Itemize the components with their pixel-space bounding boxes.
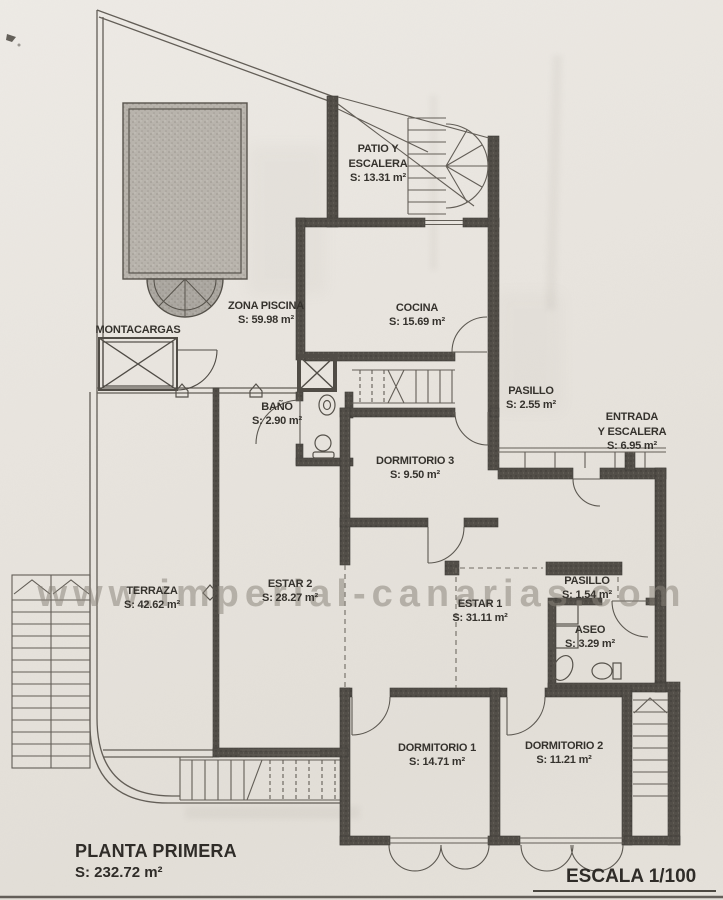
room-label-dormitorio1: DORMITORIO 1 S: 14.71 m² xyxy=(398,742,476,769)
room-label-patio-escalera: PATIO Y ESCALERA S: 13.31 m² xyxy=(349,142,408,186)
room-label-entrada-escalera: ENTRADA Y ESCALERA S: 6.95 m² xyxy=(598,410,667,454)
room-label-zona-piscina: ZONA PISCINA S: 59.98 m² xyxy=(228,300,304,327)
room-label-estar2: ESTAR 2 S: 28.27 m² xyxy=(262,578,318,605)
plan-title-block: PLANTA PRIMERA S: 232.72 m² xyxy=(75,841,237,882)
room-label-aseo: ASEO S: 3.29 m² xyxy=(565,624,615,651)
plan-total-area: S: 232.72 m² xyxy=(75,863,237,883)
scale-label: ESCALA 1/100 xyxy=(566,866,696,888)
room-label-pasillo-superior: PASILLO S: 2.55 m² xyxy=(506,385,556,412)
room-label-dormitorio2: DORMITORIO 2 S: 11.21 m² xyxy=(525,740,603,767)
room-label-estar1: ESTAR 1 S: 31.11 m² xyxy=(452,598,507,625)
room-label-bano: BAÑO S: 2.90 m² xyxy=(252,401,302,428)
room-label-montacargas: MONTACARGAS xyxy=(96,324,181,338)
room-label-cocina: COCINA S: 15.69 m² xyxy=(389,302,445,329)
room-label-dormitorio3: DORMITORIO 3 S: 9.50 m² xyxy=(376,455,454,482)
room-label-terraza: TERRAZA S: 42.62 m² xyxy=(124,585,180,612)
room-label-pasillo-inferior: PASILLO S: 1.54 m² xyxy=(562,575,612,602)
plan-title: PLANTA PRIMERA xyxy=(75,841,237,863)
scanned-floor-plan-page: www.imperial-canarias.com PATIO Y ESCALE… xyxy=(0,0,723,900)
